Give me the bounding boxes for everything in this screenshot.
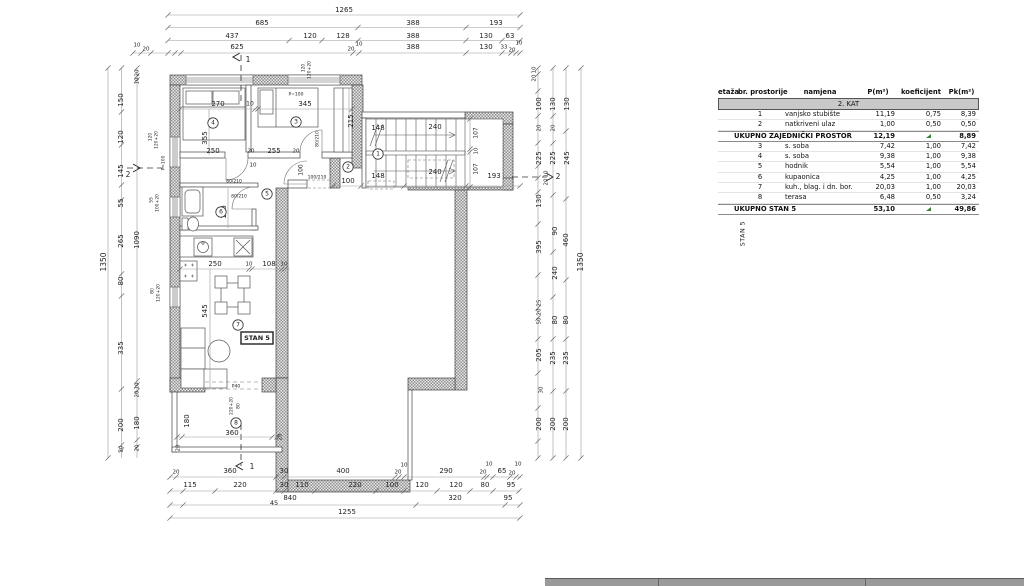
dim-label: 148 <box>371 124 384 132</box>
dining-table <box>215 276 250 314</box>
dim-label: 20 <box>480 470 487 476</box>
fridge <box>180 261 197 281</box>
dim-label: 120 <box>415 481 428 489</box>
dim-label: 10 <box>281 262 288 268</box>
dim-label: 220+20 <box>229 397 235 415</box>
room-number-label: 3 <box>294 119 298 126</box>
area-pk: 4,25 <box>944 173 979 182</box>
wall <box>262 378 276 392</box>
dim-label: 10 <box>516 41 523 47</box>
floor-plan-sheet: 1265685388193437120128388130631020625201… <box>0 0 1024 586</box>
table-row: 3 s. soba 7,42 1,00 7,42 <box>718 142 979 152</box>
dim-label: 20 <box>248 149 255 155</box>
room-name: hodnik <box>782 162 858 171</box>
dim-label: 145 <box>117 164 125 177</box>
dim-label: 388 <box>406 43 419 51</box>
koeficijent: 1,00 <box>898 162 944 171</box>
room-number-label: 5 <box>265 191 269 198</box>
koeficijent: 1,00 <box>898 152 944 161</box>
dim-label: 120 <box>303 32 316 40</box>
table-header-cell: koeficijent <box>898 87 944 98</box>
koeficijent: 1,00 <box>898 183 944 192</box>
dim-label: 180 <box>133 416 141 429</box>
row-number: 8 <box>738 193 782 202</box>
room-number-label: 2 <box>346 164 350 171</box>
dim-label: 240 <box>428 123 441 131</box>
dim-label: P=100 <box>288 92 303 98</box>
toilet <box>182 217 199 231</box>
area-pk: 7,42 <box>944 142 979 151</box>
dim-label: 20 <box>135 69 141 76</box>
dim-label: 235 <box>549 351 557 364</box>
dim-label: 388 <box>406 32 419 40</box>
dim-label: 100 <box>535 97 543 110</box>
total-row: UKUPNO ZAJEDNIČKI PROSTOR 12,19 8,89 <box>718 131 979 142</box>
dim-label: 200 <box>535 417 543 430</box>
area-pk: 20,03 <box>944 183 979 192</box>
dim-label: 20 <box>119 445 125 452</box>
dim-label: 80 <box>117 277 125 286</box>
table-row: 4 s. soba 9,38 1,00 9,38 <box>718 152 979 162</box>
window <box>288 75 340 85</box>
dim-label: 240 <box>551 266 559 279</box>
stove <box>234 238 252 256</box>
wall <box>408 378 455 390</box>
dim-label: 1 <box>246 55 251 64</box>
dim-label: 200 <box>549 417 557 430</box>
dim-label: 20 <box>135 444 141 451</box>
room-name: vanjsko stubište <box>782 110 858 119</box>
dim-label: 20 <box>348 47 355 53</box>
dim-label: 215 <box>347 114 355 127</box>
row-number: 5 <box>738 162 782 171</box>
koeficijent: 1,00 <box>898 173 944 182</box>
table-row: 7 kuh., blag. i dn. bor. 20,03 1,00 20,0… <box>718 183 979 193</box>
room-number-label: 7 <box>236 322 240 329</box>
area-pk: 9,38 <box>944 152 979 161</box>
dim-label: 20 <box>173 470 180 476</box>
table-header-cell: etaža <box>718 87 738 98</box>
dim-label: 10 <box>544 170 550 177</box>
total-pk: 8,89 <box>944 132 979 141</box>
dim-label: 80 <box>562 316 570 325</box>
dim-label: 360 <box>225 429 238 437</box>
dim-label: 20 <box>537 124 543 131</box>
area-pk: 5,54 <box>944 162 979 171</box>
dim-label: 120+20 <box>154 131 160 149</box>
area-p: 9,38 <box>858 152 898 161</box>
titleblock-bar <box>545 578 1024 586</box>
room-number-label: 6 <box>219 209 223 216</box>
dim-label: 80 <box>551 316 559 325</box>
wall <box>455 190 467 390</box>
wall <box>170 85 180 392</box>
dim-label: 30 <box>280 467 289 475</box>
dim-label: 2 <box>126 170 131 179</box>
dim-label: 100+20 <box>155 194 161 212</box>
dim-label: 80/210 <box>315 131 321 147</box>
dim-label: 33 <box>501 45 508 51</box>
dim-label: 120+20 <box>307 61 313 79</box>
dim-label: 1 <box>250 462 255 471</box>
dim-label: 10 <box>486 462 493 468</box>
total-pk: 49,86 <box>944 205 979 214</box>
dim-label: 110 <box>295 481 308 489</box>
dim-label: 20 <box>509 471 516 477</box>
area-pk: 0,50 <box>944 120 979 129</box>
area-pk: 8,39 <box>944 110 979 119</box>
dim-label: 685 <box>255 19 268 27</box>
door-arc <box>226 158 248 180</box>
dim-label: 20 <box>143 47 150 53</box>
dim-label: 90 <box>551 227 559 236</box>
dim-label: 100 <box>385 481 398 489</box>
dim-label: 2 <box>556 172 561 181</box>
table-header: etažabr. prostorijenamjenaP(m²)koeficije… <box>718 87 979 98</box>
dim-label: 250 <box>208 260 221 268</box>
dim-label: 130 <box>479 43 492 51</box>
titleblock-segment <box>866 579 1024 586</box>
floor-band: 2. KAT <box>718 98 979 110</box>
dim-label: 120+20 <box>156 284 162 302</box>
koeficijent: 0,50 <box>898 193 944 202</box>
total-label: UKUPNO ZAJEDNIČKI PROSTOR <box>718 132 858 141</box>
dim-label: 45 <box>270 499 278 507</box>
dim-label: 235 <box>562 351 570 364</box>
room-name: natkriveni ulaz <box>782 120 858 129</box>
area-pk: 3,24 <box>944 193 979 202</box>
dim-label: 225 <box>535 151 543 164</box>
dim-label: 335 <box>117 341 125 354</box>
bed <box>183 88 245 140</box>
table-header-cell: P(m²) <box>858 87 898 98</box>
koef-marker-icon <box>898 132 944 141</box>
dim-label: 80 <box>236 403 242 409</box>
dim-label: 30 <box>280 481 289 489</box>
dim-label: 270 <box>211 100 224 108</box>
dim-label: 10 <box>246 101 254 108</box>
dim-label: 360 <box>223 467 236 475</box>
chair <box>215 302 227 314</box>
dim-label: 95 <box>504 494 513 502</box>
dim-label: 220 <box>348 481 361 489</box>
area-table: etažabr. prostorijenamjenaP(m²)koeficije… <box>718 87 979 215</box>
dim-label: 130 <box>563 97 571 110</box>
dim-label: 108 <box>262 260 275 268</box>
dim-label: 80/210 <box>226 179 242 185</box>
dim-label: 20 <box>551 124 557 131</box>
dim-label: 130 <box>479 32 492 40</box>
dim-label: 1350 <box>99 252 108 271</box>
row-number: 4 <box>738 152 782 161</box>
dim-label: 100 <box>341 177 354 185</box>
dim-label: 120 <box>148 133 154 142</box>
dim-label: P40 <box>232 384 241 390</box>
dim-label: 130 <box>535 194 543 207</box>
dim-label: 225 <box>549 151 557 164</box>
row-number: 1 <box>738 110 782 119</box>
dim-label: 1255 <box>338 508 356 516</box>
dim-label: 20 <box>544 178 550 185</box>
chair <box>238 302 250 314</box>
dim-label: 63 <box>506 32 515 40</box>
dim-label: 10 <box>356 42 363 48</box>
dim-label: 25 <box>537 299 543 306</box>
dim-label: 437 <box>225 32 238 40</box>
table-header-cell: br. prostorije <box>738 87 782 98</box>
dim-label: 250 <box>206 147 219 155</box>
room-name: terasa <box>782 193 858 202</box>
dim-label: 1350 <box>576 252 585 271</box>
row-number: 7 <box>738 183 782 192</box>
dim-label: 10 <box>474 147 480 154</box>
window <box>170 197 180 217</box>
dim-label: 55 <box>117 199 125 208</box>
stan5-label: STAN 5 <box>244 334 270 342</box>
dim-label: 130 <box>549 97 557 110</box>
total-p: 53,10 <box>858 205 898 214</box>
room-name: s. soba <box>782 152 858 161</box>
dim-label: 245 <box>563 151 571 164</box>
area-p: 20,03 <box>858 183 898 192</box>
area-p: 1,00 <box>858 120 898 129</box>
table-row: 8 terasa 6,48 0,50 3,24 <box>718 193 979 203</box>
dim-label: 1265 <box>335 6 353 14</box>
room-name: kupaonica <box>782 173 858 182</box>
dim-label: 30 <box>539 386 545 393</box>
dim-label: 20 <box>278 433 284 440</box>
round-table <box>208 340 230 362</box>
dim-label: 255 <box>267 147 280 155</box>
dim-label: 100/210 <box>308 175 327 181</box>
area-p: 5,54 <box>858 162 898 171</box>
bathtub <box>182 187 203 216</box>
entrance-door-opening <box>307 180 330 188</box>
area-p: 4,25 <box>858 173 898 182</box>
row-number: 3 <box>738 142 782 151</box>
table-row: 1 vanjsko stubište 11,19 0,75 8,39 <box>718 110 979 120</box>
table-row: 5 hodnik 5,54 1,00 5,54 <box>718 162 979 172</box>
dim-label: 193 <box>487 172 500 180</box>
dim-label: P=100 <box>161 155 167 170</box>
room-name: s. soba <box>782 142 858 151</box>
dim-label: 10 <box>515 462 522 468</box>
dim-label: 20 <box>293 149 300 155</box>
dim-label: 840 <box>283 494 296 502</box>
dim-label: 107 <box>473 127 480 139</box>
dim-label: 180 <box>183 414 191 427</box>
dim-label: 10 <box>135 382 141 389</box>
row-number: 2 <box>738 120 782 129</box>
dim-label: 128 <box>336 32 349 40</box>
dim-label: 10 <box>246 262 253 268</box>
table-header-cell: namjena <box>782 87 858 98</box>
axis-arrow-icon <box>236 462 243 470</box>
dim-label: 20 <box>532 74 538 81</box>
area-p: 6,48 <box>858 193 898 202</box>
dim-label: 460 <box>562 233 570 246</box>
koef-marker-icon <box>898 205 944 214</box>
room-name: kuh., blag. i dn. bor. <box>782 183 858 192</box>
dim-label: 1090 <box>133 231 141 249</box>
total-row: UKUPNO STAN 5 53,10 49,86 <box>718 204 979 215</box>
dim-label: 20 <box>135 390 141 397</box>
dim-label: 10 <box>250 163 257 169</box>
dim-label: 388 <box>406 19 419 27</box>
area-p: 11,19 <box>858 110 898 119</box>
dim-label: 120 <box>301 64 307 73</box>
axis-arrow-icon <box>233 53 240 61</box>
dim-label: 345 <box>298 100 311 108</box>
dim-label: 240 <box>428 168 441 176</box>
dim-label: 625 <box>230 43 243 51</box>
room-number-label: 1 <box>376 151 380 158</box>
dim-label: 120 <box>117 130 125 143</box>
dim-label: 80 <box>150 288 156 294</box>
dim-label: 120 <box>449 481 462 489</box>
table-header-cell: Pk(m²) <box>944 87 979 98</box>
dim-label: 80/210 <box>231 194 247 200</box>
dim-label: 55 <box>149 197 155 203</box>
chair <box>215 276 227 288</box>
dim-label: 20 <box>395 470 402 476</box>
koeficijent: 1,00 <box>898 142 944 151</box>
total-p: 12,19 <box>858 132 898 141</box>
titleblock-segment <box>659 579 866 586</box>
chair <box>238 276 250 288</box>
dim-label: 50 <box>537 317 543 324</box>
dim-label: 10 <box>532 66 538 73</box>
row-number: 6 <box>738 173 782 182</box>
dim-label: 95 <box>507 481 516 489</box>
dim-label: 20 <box>176 444 182 451</box>
dim-label: 65 <box>498 467 507 475</box>
dim-label: 545 <box>201 304 209 317</box>
dim-label: 20 <box>537 308 543 315</box>
room-number-label: 8 <box>234 420 238 427</box>
dim-label: 290 <box>439 467 452 475</box>
dim-label: 200 <box>562 417 570 430</box>
kitchen-sink <box>194 238 212 256</box>
dim-label: 355 <box>201 131 209 144</box>
dim-label: 220 <box>233 481 246 489</box>
dim-label: 20 <box>509 48 516 54</box>
dim-label: 10 <box>134 43 141 49</box>
dim-label: 205 <box>535 348 543 361</box>
dim-label: 148 <box>371 172 384 180</box>
dim-label: 10 <box>135 77 141 84</box>
dim-label: 10 <box>401 463 408 469</box>
dim-label: 107 <box>473 163 480 175</box>
room-number-label: 4 <box>211 120 215 127</box>
koeficijent: 0,50 <box>898 120 944 129</box>
koeficijent: 0,75 <box>898 110 944 119</box>
table-row: 2 natkriveni ulaz 1,00 0,50 0,50 <box>718 120 979 130</box>
dim-label: 80 <box>481 481 490 489</box>
table-row: 6 kupaonica 4,25 1,00 4,25 <box>718 173 979 183</box>
dim-label: 115 <box>183 481 196 489</box>
dim-label: 100 <box>298 164 305 176</box>
dim-label: 265 <box>117 234 125 247</box>
group-label-stan5: STAN 5 <box>739 207 748 261</box>
dim-label: 395 <box>535 240 543 253</box>
dim-label: 320 <box>448 494 461 502</box>
titleblock-segment <box>545 579 659 586</box>
dim-label: 400 <box>336 467 349 475</box>
wall <box>276 188 288 378</box>
wall <box>330 158 340 188</box>
window <box>170 137 180 167</box>
window <box>186 75 253 85</box>
dim-label: 193 <box>489 19 502 27</box>
dim-label: 150 <box>117 93 125 106</box>
window <box>170 287 180 307</box>
area-p: 7,42 <box>858 142 898 151</box>
dim-label: 200 <box>117 418 125 431</box>
